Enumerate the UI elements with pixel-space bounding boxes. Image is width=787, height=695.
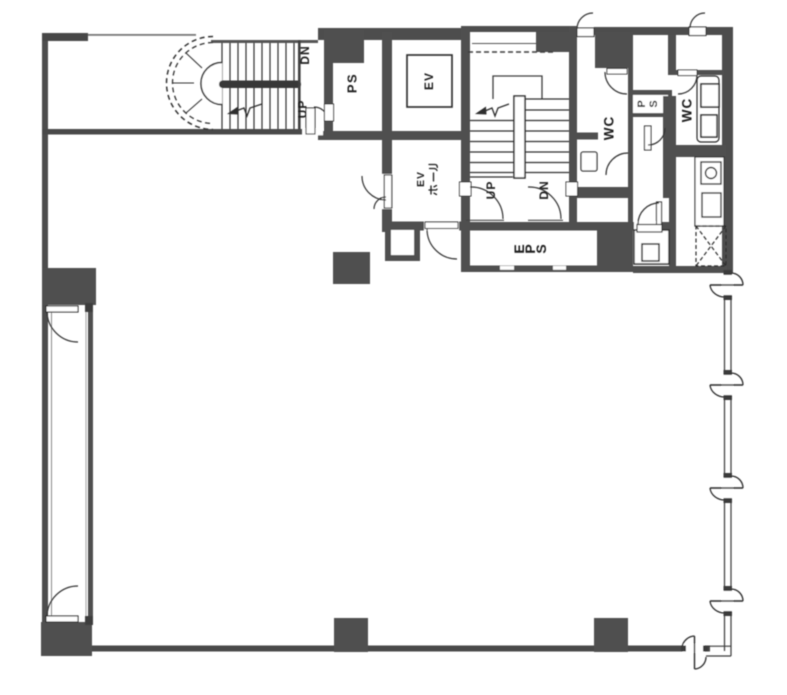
svg-text:WC: WC [602,116,617,141]
svg-text:WC: WC [680,98,695,123]
svg-text:EV: EV [415,171,427,187]
svg-text:PS: PS [345,73,360,93]
svg-text:P: P [636,100,648,107]
svg-text:EV: EV [422,72,436,90]
svg-text:S: S [533,244,549,253]
svg-text:S: S [648,100,660,107]
svg-text:DN: DN [298,45,312,64]
